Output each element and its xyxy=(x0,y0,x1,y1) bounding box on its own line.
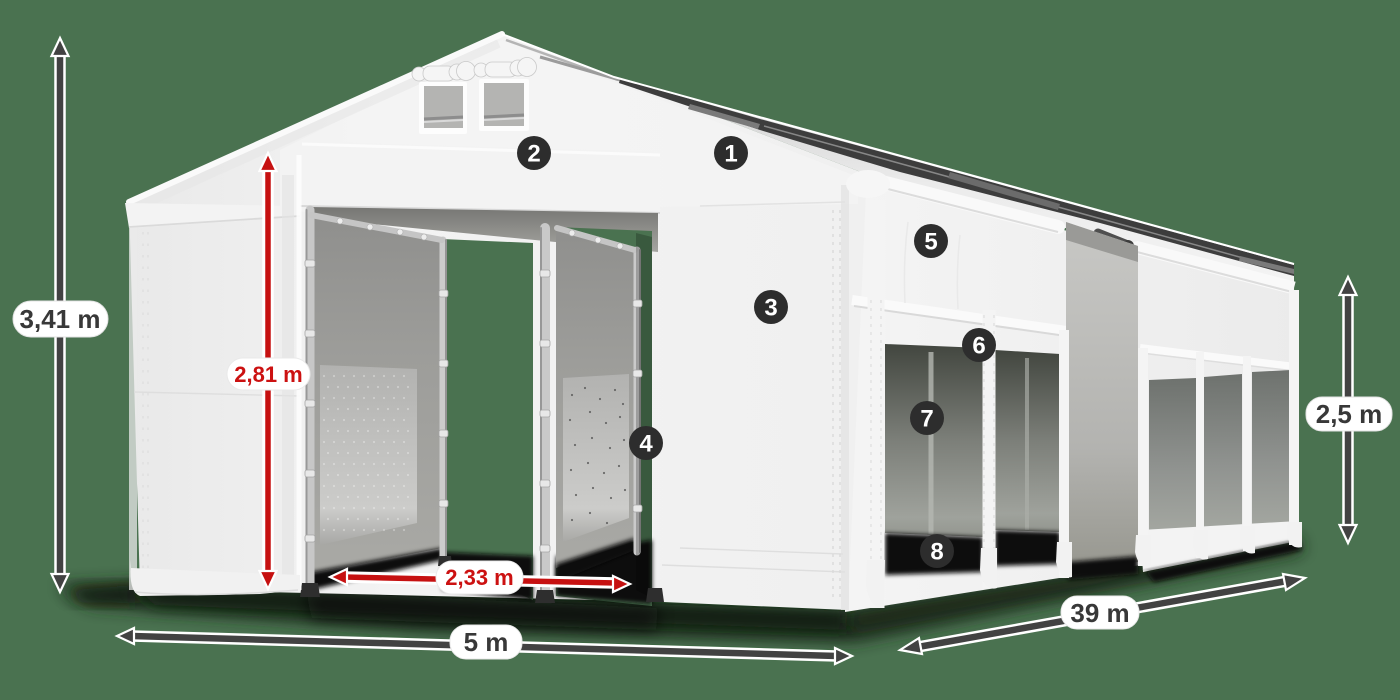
svg-text:8: 8 xyxy=(930,539,943,566)
svg-text:2,5 m: 2,5 m xyxy=(1316,399,1383,429)
svg-text:2,81 m: 2,81 m xyxy=(234,362,303,387)
svg-text:5 m: 5 m xyxy=(464,627,509,657)
svg-text:2: 2 xyxy=(527,141,540,168)
svg-text:39 m: 39 m xyxy=(1070,598,1129,628)
svg-text:2,33 m: 2,33 m xyxy=(445,565,514,590)
svg-text:1: 1 xyxy=(724,141,737,168)
svg-text:7: 7 xyxy=(920,406,933,433)
svg-text:3: 3 xyxy=(764,295,777,322)
svg-text:6: 6 xyxy=(972,333,985,360)
svg-text:5: 5 xyxy=(924,229,937,256)
svg-text:4: 4 xyxy=(639,431,653,458)
svg-text:3,41 m: 3,41 m xyxy=(20,304,101,334)
